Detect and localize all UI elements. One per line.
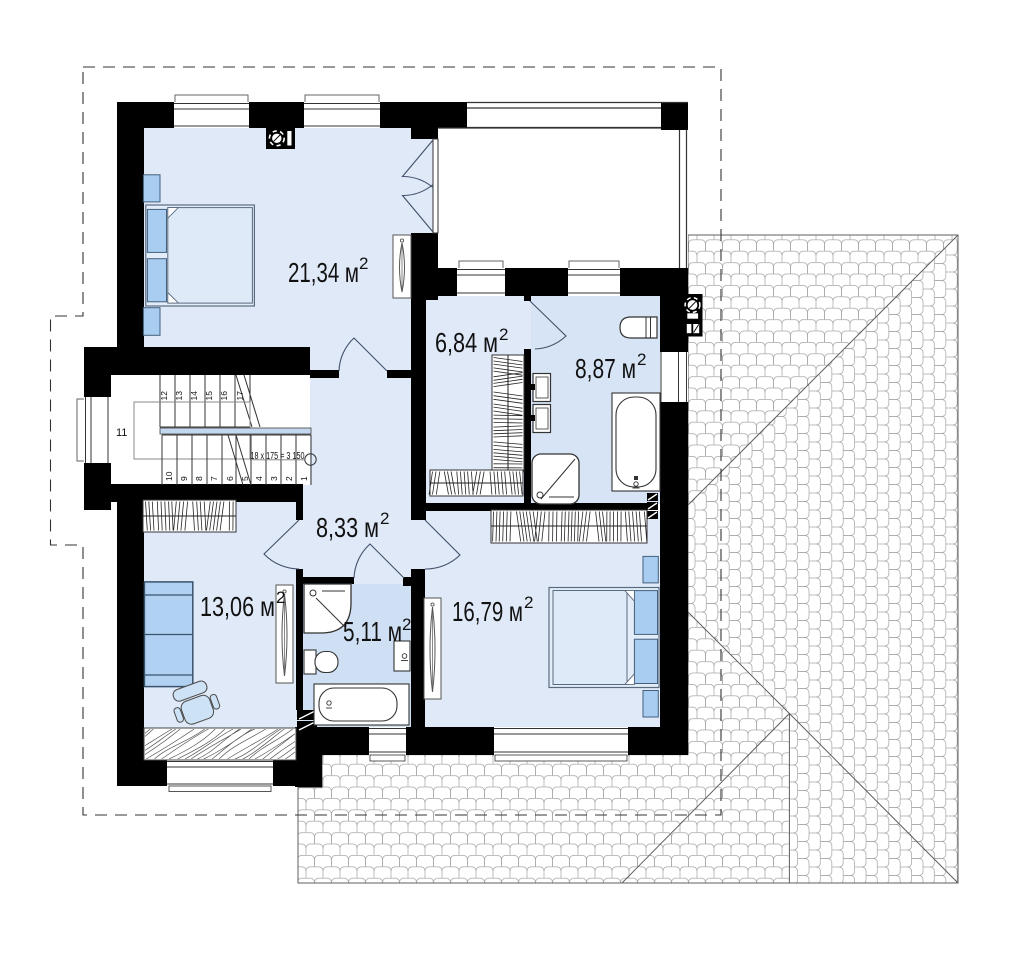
svg-text:8,33 м: 8,33 м (316, 512, 379, 543)
svg-text:11: 11 (116, 427, 127, 439)
svg-text:13,06 м: 13,06 м (200, 591, 275, 622)
svg-text:8,87 м: 8,87 м (575, 353, 636, 384)
svg-text:5: 5 (240, 476, 250, 481)
svg-text:17: 17 (235, 391, 245, 401)
svg-text:2: 2 (524, 593, 533, 612)
svg-text:13: 13 (174, 391, 184, 401)
svg-text:15: 15 (204, 391, 214, 401)
svg-text:16,79 м: 16,79 м (452, 596, 523, 627)
svg-text:10: 10 (164, 471, 174, 481)
svg-text:2: 2 (284, 476, 294, 481)
svg-text:3: 3 (269, 476, 279, 481)
svg-text:2: 2 (276, 588, 285, 607)
svg-text:2: 2 (402, 615, 411, 634)
svg-text:9: 9 (179, 476, 189, 481)
svg-text:2: 2 (380, 509, 389, 528)
svg-text:1: 1 (299, 476, 309, 481)
svg-text:2: 2 (359, 254, 368, 273)
svg-text:18 x 175 = 3 150: 18 x 175 = 3 150 (251, 451, 305, 462)
svg-text:21,34 м: 21,34 м (288, 257, 359, 288)
svg-text:14: 14 (189, 391, 199, 401)
svg-text:2: 2 (499, 325, 508, 344)
svg-text:6,84 м: 6,84 м (435, 327, 498, 358)
svg-text:2: 2 (637, 350, 646, 369)
svg-text:8: 8 (194, 476, 204, 481)
svg-text:5,11 м: 5,11 м (343, 616, 402, 647)
svg-text:4: 4 (254, 476, 264, 481)
svg-text:6: 6 (225, 476, 235, 481)
svg-text:7: 7 (209, 476, 219, 481)
svg-text:16: 16 (219, 391, 229, 401)
svg-text:12: 12 (159, 391, 169, 401)
